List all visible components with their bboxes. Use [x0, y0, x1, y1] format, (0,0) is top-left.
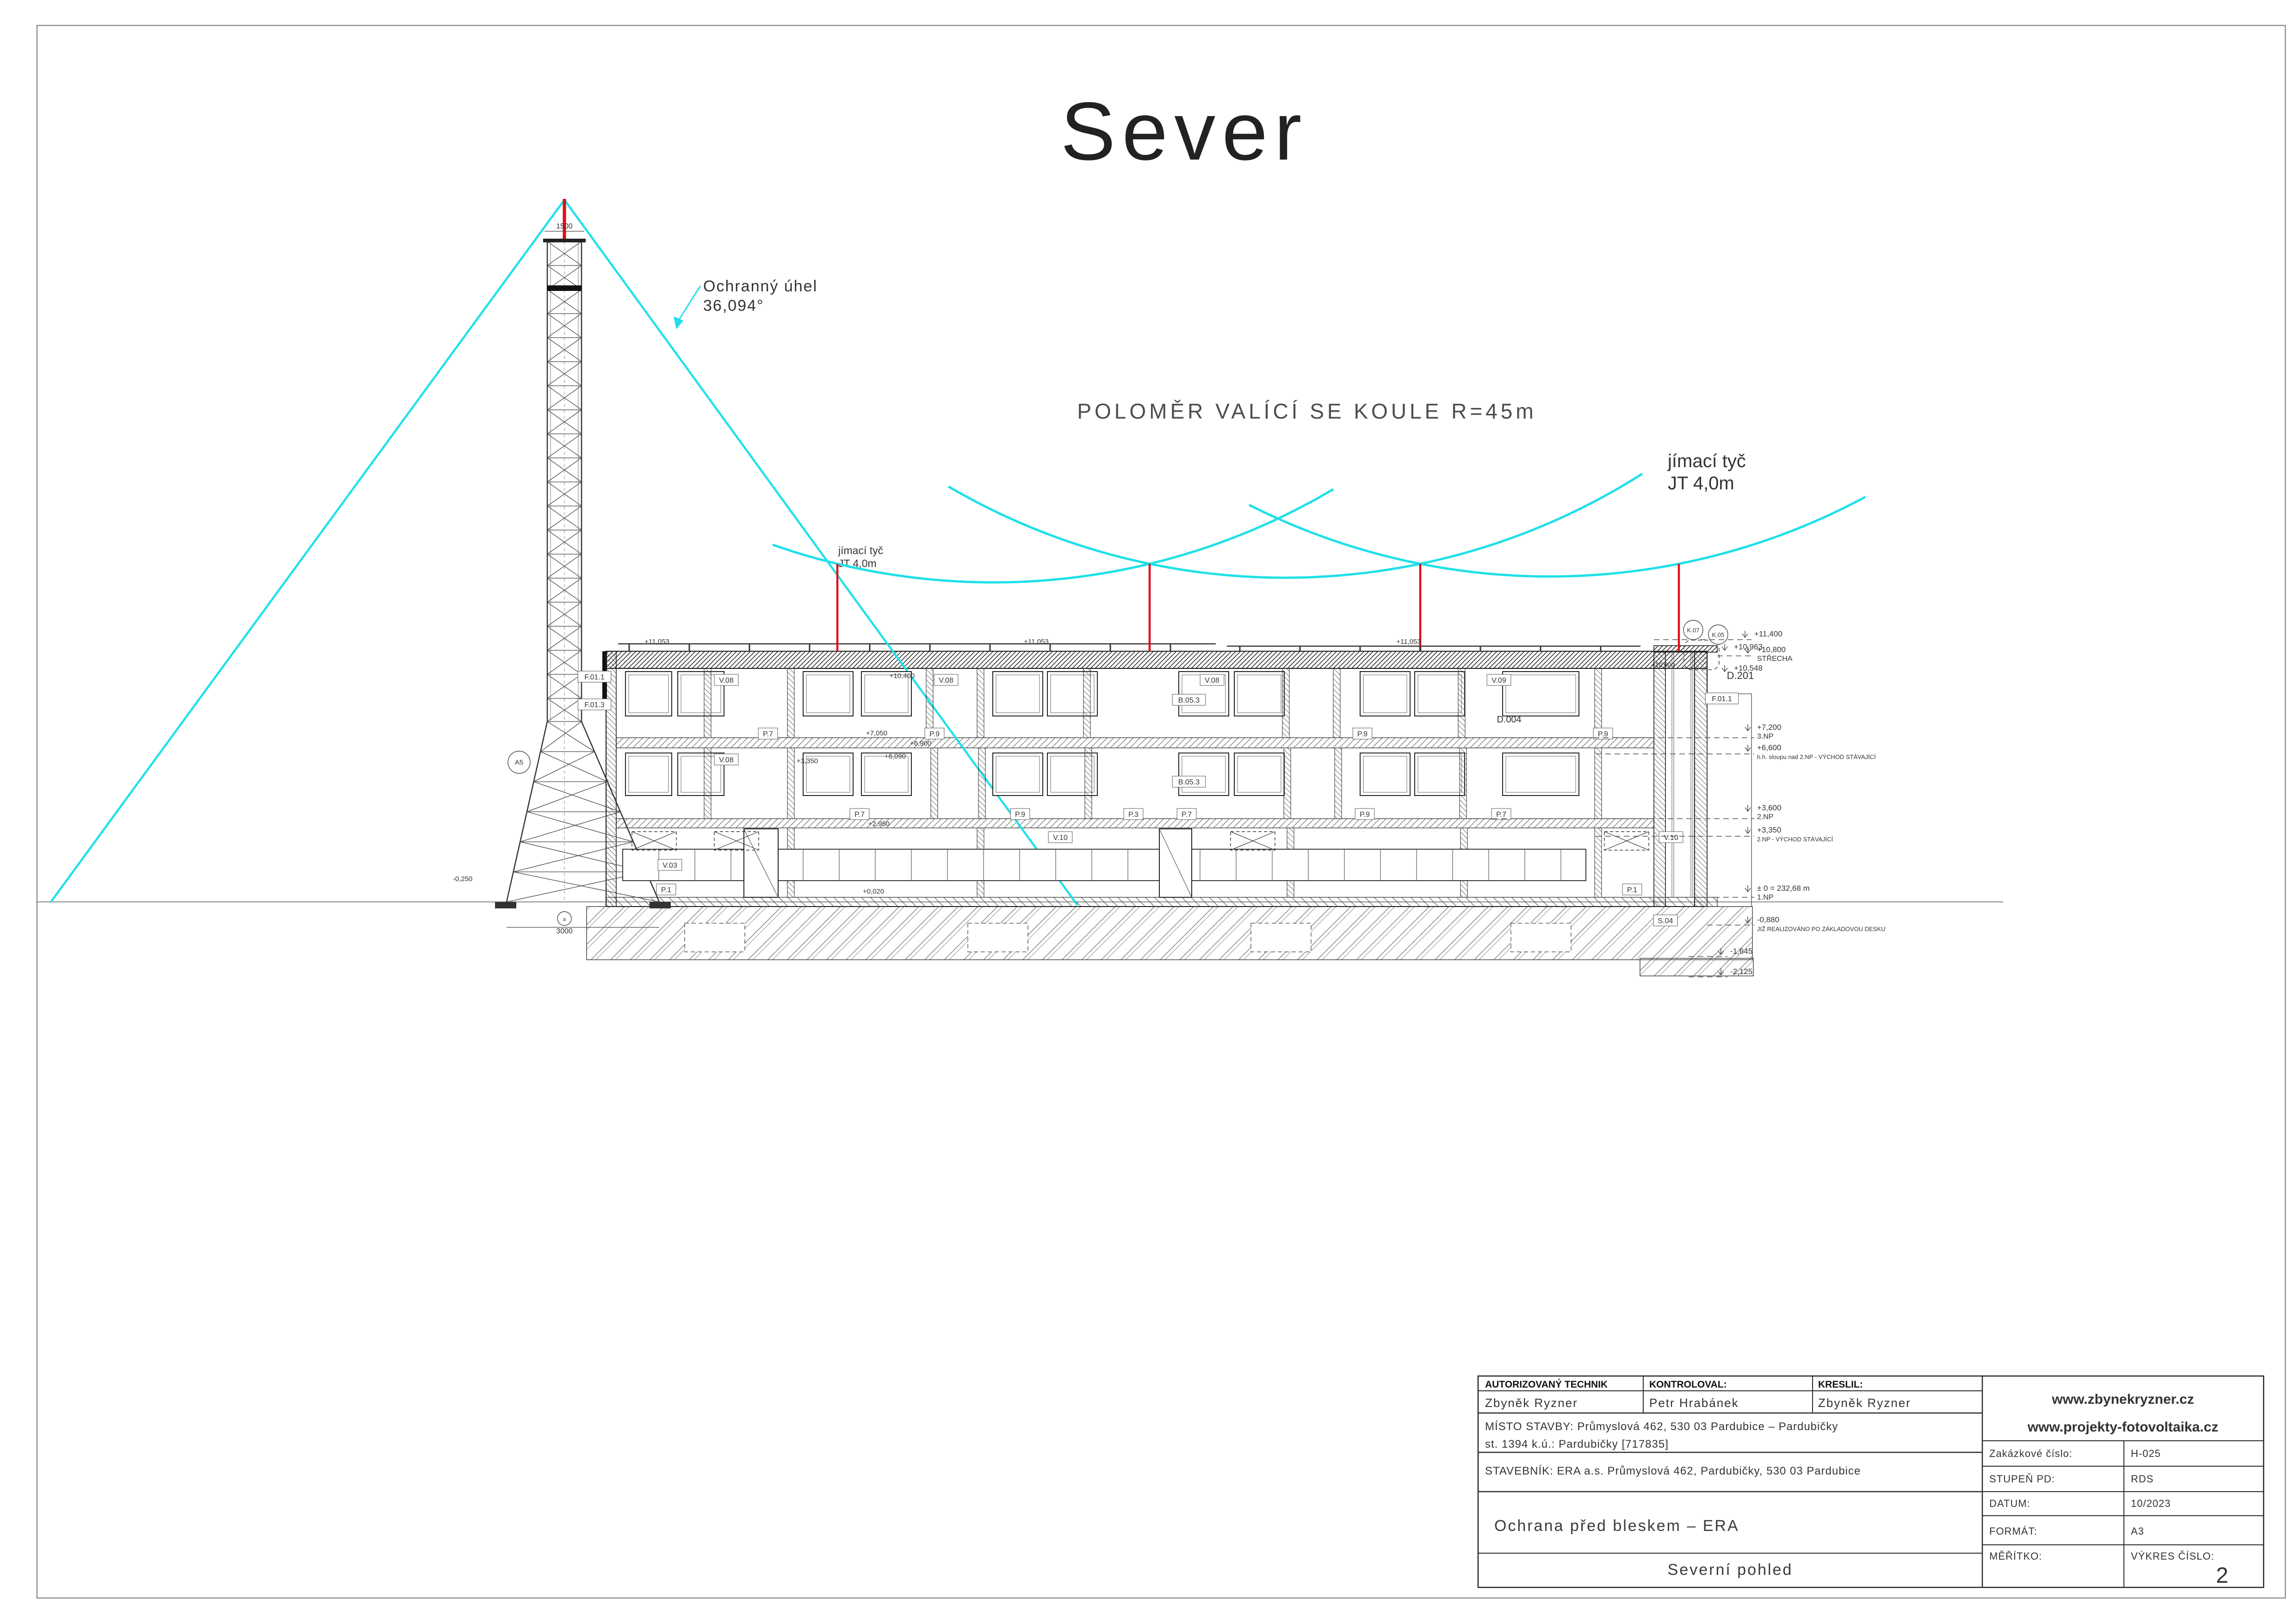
dim-label: +0,020: [863, 888, 884, 895]
boxed-label: P.7: [854, 811, 865, 819]
boxed-label: S.04: [1658, 917, 1673, 925]
site-line2: st. 1394 k.ú.: Pardubičky [717835]: [1485, 1438, 1669, 1450]
tower-footing: [650, 902, 671, 908]
level-mark-sub: h.h. sloupu nad 2.NP - VÝCHOD STÁVAJÍCÍ: [1757, 753, 1876, 760]
air-rod-big-text1: jímací tyč: [1667, 451, 1746, 471]
dim-label: +7,050: [866, 729, 887, 737]
footing: [1511, 923, 1571, 952]
window: [1415, 753, 1465, 796]
window: [803, 672, 853, 716]
boxed-label: V.03: [662, 862, 677, 870]
website-link-1[interactable]: www.zbynekryzner.cz: [2051, 1392, 2194, 1407]
level-arrow: [1742, 631, 1748, 637]
partition-wall: [1282, 668, 1289, 738]
format-value: A3: [2131, 1525, 2144, 1537]
number-value: 2: [2216, 1563, 2228, 1588]
drawn-label: KRESLIL:: [1818, 1379, 1863, 1390]
boxed-label: V.10: [1664, 834, 1678, 842]
window: [1503, 753, 1579, 796]
boxed-label: V.08: [719, 756, 734, 764]
partition-wall: [1458, 668, 1465, 738]
footing: [968, 923, 1028, 952]
dim-label: +3,350: [797, 757, 818, 765]
drawn-name: Zbyněk Ryzner: [1818, 1396, 1911, 1410]
rolling-sphere-arc: [1249, 497, 1865, 576]
partition-wall: [1085, 748, 1092, 819]
dim-label: +10,600: [1652, 661, 1675, 668]
protective-angle-text1: Ochranný úhel: [703, 278, 817, 295]
window: [993, 672, 1043, 716]
drawing-sheet: Sever POLOMĚR VALÍCÍ SE KOULE R=45m Ochr…: [0, 0, 2296, 1623]
dim-label: 3000: [556, 927, 573, 935]
partition-wall: [704, 748, 711, 819]
generated-drawing: +11,053+11,053+11,053+10,400+10,600+7,05…: [51, 199, 1885, 977]
boxed-label: V.09: [1491, 677, 1506, 685]
order-label: Zakázkové číslo:: [1989, 1448, 2073, 1459]
level-mark-sub: STŘECHA: [1757, 654, 1793, 663]
left-wall: [606, 651, 616, 907]
stage-value: RDS: [2131, 1473, 2154, 1485]
dim-label: -0,250: [453, 875, 473, 883]
level-mark: -2,125: [1730, 967, 1752, 976]
title-block: AUTORIZOVANÝ TECHNIK KONTROLOVAL: KRESLI…: [1478, 1376, 2264, 1588]
boxed-label: P.9: [1357, 730, 1368, 738]
partition-wall: [1460, 748, 1467, 819]
cad-canvas: Sever POLOMĚR VALÍCÍ SE KOULE R=45m Ochr…: [0, 0, 2296, 1623]
window: [993, 753, 1043, 796]
order-value: H-025: [2131, 1448, 2161, 1459]
level-mark: +10,800: [1757, 645, 1786, 654]
level-arrow: [1745, 745, 1751, 751]
level-mark: +10,548: [1734, 664, 1763, 673]
number-label: VÝKRES ČÍSLO:: [2131, 1550, 2215, 1562]
boxed-label: V.10: [1053, 834, 1068, 842]
boxed-label: F.01.1: [1712, 695, 1732, 703]
tower-brace: [520, 812, 620, 842]
boxed-label: V.08: [719, 677, 734, 685]
dim-label: +2,950: [868, 820, 890, 828]
level-mark-sub: 2.NP: [1757, 813, 1774, 821]
protective-angle-line-right: [564, 200, 1077, 905]
boxed-label: P.7: [1496, 811, 1506, 819]
boxed-label: P.1: [661, 886, 671, 894]
level-arrow: [1722, 644, 1727, 650]
partition-wall: [926, 668, 933, 738]
annex-wall-right: [1695, 651, 1707, 907]
partition-wall: [1083, 668, 1090, 738]
boxed-label: B.05.3: [1178, 778, 1200, 786]
partition-wall: [1595, 828, 1602, 897]
boxed-label: P.7: [763, 730, 773, 738]
project-title: Ochrana před bleskem – ERA: [1494, 1517, 1739, 1535]
level-arrow: [1745, 805, 1751, 811]
scale-label: MĚŘÍTKO:: [1989, 1550, 2042, 1562]
boxed-label: P.9: [1360, 811, 1370, 819]
site-line1: MÍSTO STAVBY: Průmyslová 462, 530 03 Par…: [1485, 1420, 1838, 1433]
window: [1179, 753, 1229, 796]
annex-wall-left: [1654, 651, 1665, 907]
base-slab: [606, 897, 1717, 907]
protective-angle-label: Ochranný úhel 36,094°: [674, 278, 817, 329]
air-rod-small-text1: jímací tyč: [838, 544, 883, 556]
dim-label: +10,400: [890, 672, 915, 680]
leader-arrowhead: [674, 316, 683, 329]
dim-label: +6,900: [910, 740, 931, 747]
tower-black-band: [547, 285, 582, 291]
tower-top-plate: [543, 239, 586, 242]
format-label: FORMÁT:: [1989, 1525, 2037, 1537]
window: [1234, 753, 1284, 796]
level-mark-sub: 2.NP - VÝCHOD STÁVAJÍCÍ: [1757, 836, 1833, 843]
level-mark: -0,880: [1757, 915, 1779, 924]
tower-footing: [495, 902, 516, 908]
dim-label: D.004: [1497, 715, 1521, 725]
stage-label: STUPEŇ PD:: [1989, 1473, 2055, 1485]
boxed-label: F.01.3: [584, 701, 605, 709]
partition-wall: [978, 748, 985, 819]
roof-slab: [606, 651, 1707, 668]
boxed-label: P.9: [929, 730, 940, 738]
sheet-title: Severní pohled: [1668, 1561, 1793, 1579]
dim-label: +11,053: [1396, 638, 1421, 646]
boxed-label: P.9: [1598, 730, 1608, 738]
dim-label: +11,053: [1024, 638, 1049, 646]
bubble-label: K.05: [1712, 631, 1725, 638]
authorized-name: Zbyněk Ryzner: [1485, 1396, 1578, 1410]
level-mark: +3,350: [1757, 826, 1781, 834]
air-rod-big-text2: JT 4,0m: [1668, 473, 1734, 494]
level-arrow: [1745, 827, 1751, 833]
air-rod-label-big: jímací tyč JT 4,0m: [1667, 451, 1746, 494]
partition-wall: [931, 748, 938, 819]
date-label: DATUM:: [1989, 1498, 2030, 1509]
dim-label: 1500: [556, 222, 573, 230]
boxed-label: F.01.1: [584, 673, 605, 681]
floor-slab-1: [616, 819, 1654, 828]
footing: [1251, 923, 1311, 952]
dim-label: +6,090: [885, 753, 906, 760]
checked-name: Petr Hrabánek: [1649, 1396, 1739, 1410]
level-mark: +3,600: [1757, 803, 1781, 812]
partition-wall: [1595, 668, 1602, 738]
partition-wall: [1284, 748, 1291, 819]
boxed-label: P.7: [1182, 811, 1192, 819]
right-attachment: [1707, 694, 1751, 907]
bubble-label: K.07: [1687, 627, 1700, 634]
partition-wall: [1595, 748, 1602, 819]
level-mark-sub: 3.NP: [1757, 733, 1774, 741]
partition-wall: [1333, 668, 1340, 738]
window: [625, 672, 672, 716]
bubble-label: A5: [515, 759, 523, 766]
level-mark: ± 0 = 232,68 m: [1757, 884, 1810, 893]
date-value: 10/2023: [2131, 1498, 2171, 1509]
boxed-label: P.9: [1015, 811, 1025, 819]
checked-label: KONTROLOVAL:: [1649, 1379, 1727, 1390]
bubble-label: a: [563, 917, 566, 922]
level-mark-sub: 1.NP: [1757, 894, 1774, 901]
leader-line: [676, 286, 700, 324]
level-mark: +11,400: [1754, 629, 1782, 638]
level-mark: -1,645: [1730, 947, 1752, 956]
website-link-2[interactable]: www.projekty-fotovoltaika.cz: [2027, 1419, 2218, 1435]
window: [1415, 672, 1465, 716]
boxed-label: V.08: [1205, 677, 1219, 685]
level-arrow: [1745, 885, 1751, 892]
authorized-label: AUTORIZOVANÝ TECHNIK: [1485, 1379, 1608, 1390]
protective-angle-line-left: [51, 200, 564, 902]
sheet-border: [37, 25, 2285, 1598]
level-arrow: [1745, 724, 1751, 731]
boxed-label: B.05.3: [1178, 697, 1200, 704]
foundation-strip: [587, 907, 1752, 960]
dim-label: +11,053: [644, 638, 669, 646]
window: [625, 753, 672, 796]
boxed-label: P.3: [1128, 811, 1139, 819]
level-mark-sub: JIŽ REALIZOVÁNO PO ZÁKLADOVOU DESKU: [1757, 926, 1885, 932]
partition-wall: [704, 668, 711, 738]
footing: [685, 923, 745, 952]
window: [1360, 672, 1410, 716]
window: [1360, 753, 1410, 796]
window: [1503, 672, 1579, 716]
partition-wall: [977, 668, 984, 738]
window: [1234, 672, 1284, 716]
protective-angle-text2: 36,094°: [703, 297, 764, 315]
page-title: Sever: [1061, 85, 1308, 177]
builder-line: STAVEBNÍK: ERA a.s. Průmyslová 462, Pard…: [1485, 1465, 1861, 1477]
rolling-sphere-caption: POLOMĚR VALÍCÍ SE KOULE R=45m: [1077, 399, 1536, 423]
boxed-label: V.08: [939, 677, 953, 685]
partition-wall: [787, 668, 794, 738]
tower-brace: [527, 782, 607, 812]
partition-wall: [1335, 748, 1342, 819]
partition-wall: [787, 748, 794, 819]
level-mark: +6,600: [1757, 743, 1781, 752]
tower-brace: [534, 752, 594, 782]
tower-brace: [540, 752, 607, 782]
boxed-label: P.1: [1627, 886, 1637, 894]
level-mark: +7,200: [1757, 723, 1781, 732]
